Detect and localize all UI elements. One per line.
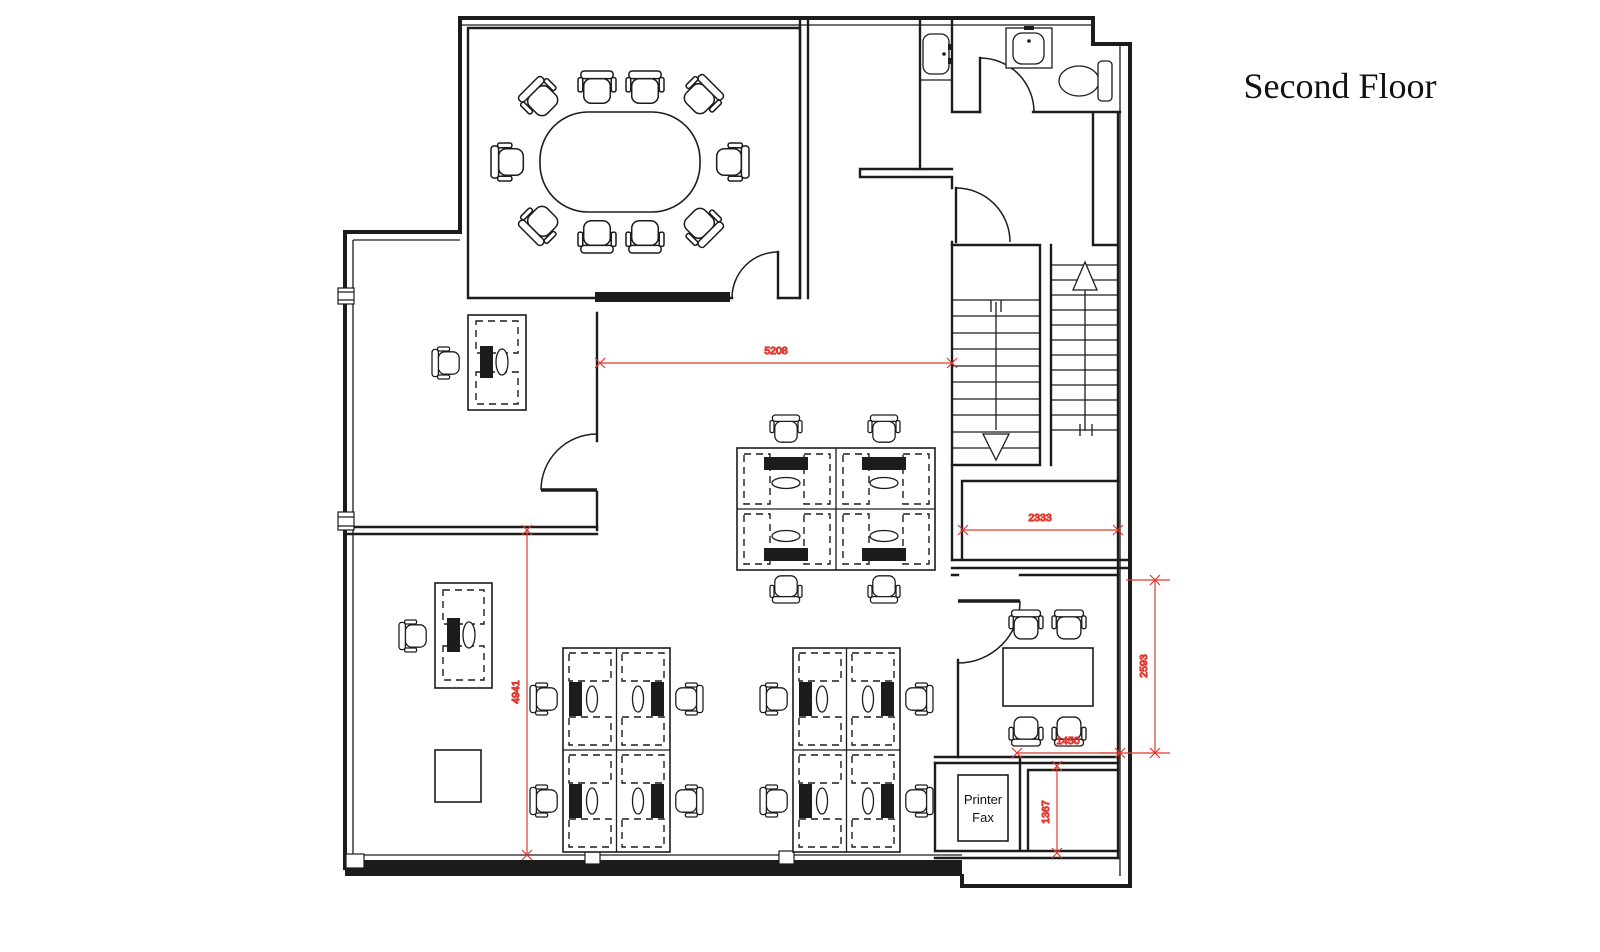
private-office-door	[541, 434, 597, 490]
conference-table	[540, 112, 700, 212]
keyboard-icon	[772, 531, 800, 542]
office-chair	[399, 620, 426, 652]
window-mullion	[779, 851, 794, 864]
conference-chair	[491, 143, 523, 181]
monitor-icon	[764, 457, 808, 470]
svg-text:1450: 1450	[1056, 735, 1080, 747]
stair-down-arrow	[983, 300, 1009, 460]
meeting-chair	[1009, 717, 1043, 746]
stair-treads	[952, 265, 1118, 448]
dimension-5208: 5208	[595, 345, 957, 368]
window-mullion	[585, 851, 600, 864]
open-office-desk	[399, 583, 492, 688]
conference-chair	[578, 71, 616, 103]
floor-plan-page: Printer Fax 5208 4941 2333 2593 1450	[0, 0, 1600, 952]
svg-text:2333: 2333	[1028, 512, 1052, 524]
conference-room-furniture	[491, 71, 749, 253]
keyboard-icon	[772, 478, 800, 489]
conference-credenza-wall	[595, 292, 730, 302]
sink-icon	[923, 34, 952, 74]
storage-cabinet	[435, 750, 481, 802]
conference-room-door	[732, 252, 778, 298]
meeting-chair	[1052, 610, 1086, 639]
printer-fax-room: Printer Fax	[958, 775, 1008, 841]
dimension-2333: 2333	[958, 512, 1123, 535]
dimension-1367: 1367	[1040, 761, 1062, 858]
monitor-icon	[862, 548, 906, 561]
keyboard-icon	[870, 478, 898, 489]
workstation-cluster-center	[737, 415, 935, 603]
conference-chair	[717, 143, 749, 181]
office-chair	[868, 415, 900, 442]
workstation-cluster-bottom-right	[760, 648, 933, 852]
printer-fax-unit	[958, 775, 1008, 841]
dimension-4941: 4941	[510, 525, 532, 860]
monitor-icon	[862, 457, 906, 470]
floor-plan-drawing: Printer Fax 5208 4941 2333 2593 1450	[0, 0, 1600, 952]
bottom-exterior-wall	[345, 860, 962, 876]
keyboard-icon	[463, 622, 475, 648]
conference-chair	[677, 201, 727, 251]
meeting-room-furniture	[1003, 610, 1093, 746]
monitor-icon	[764, 548, 808, 561]
stairwell	[952, 262, 1118, 460]
svg-text:1367: 1367	[1040, 800, 1052, 824]
conference-chair	[515, 73, 565, 123]
stair-lobby-door	[956, 188, 1010, 242]
toilet-icon	[1059, 61, 1112, 101]
svg-text:5208: 5208	[764, 345, 788, 357]
office-chair	[868, 576, 900, 603]
conference-chair	[626, 71, 664, 103]
svg-text:2593: 2593	[1138, 654, 1150, 678]
printer-label: Printer	[964, 792, 1003, 807]
stair-up-arrow	[1073, 262, 1097, 436]
keyboard-icon	[496, 349, 508, 375]
conference-chair	[578, 221, 616, 253]
dimension-2593: 2593	[1100, 575, 1170, 758]
workstation-cluster-bottom-left	[530, 648, 703, 852]
keyboard-icon	[870, 531, 898, 542]
fax-label: Fax	[972, 810, 994, 825]
office-chair	[432, 347, 459, 379]
conference-chair	[677, 71, 727, 121]
conference-chair	[515, 199, 565, 249]
monitor-icon	[447, 618, 460, 652]
private-office-desk	[432, 315, 526, 410]
office-chair	[770, 415, 802, 442]
office-chair	[770, 576, 802, 603]
svg-text:4941: 4941	[510, 680, 522, 704]
meeting-table	[1003, 648, 1093, 706]
monitor-icon	[480, 346, 493, 378]
sink-icon	[1006, 26, 1052, 68]
meeting-chair	[1009, 610, 1043, 639]
floor-title: Second Floor	[1244, 66, 1437, 106]
conference-chair	[626, 221, 664, 253]
